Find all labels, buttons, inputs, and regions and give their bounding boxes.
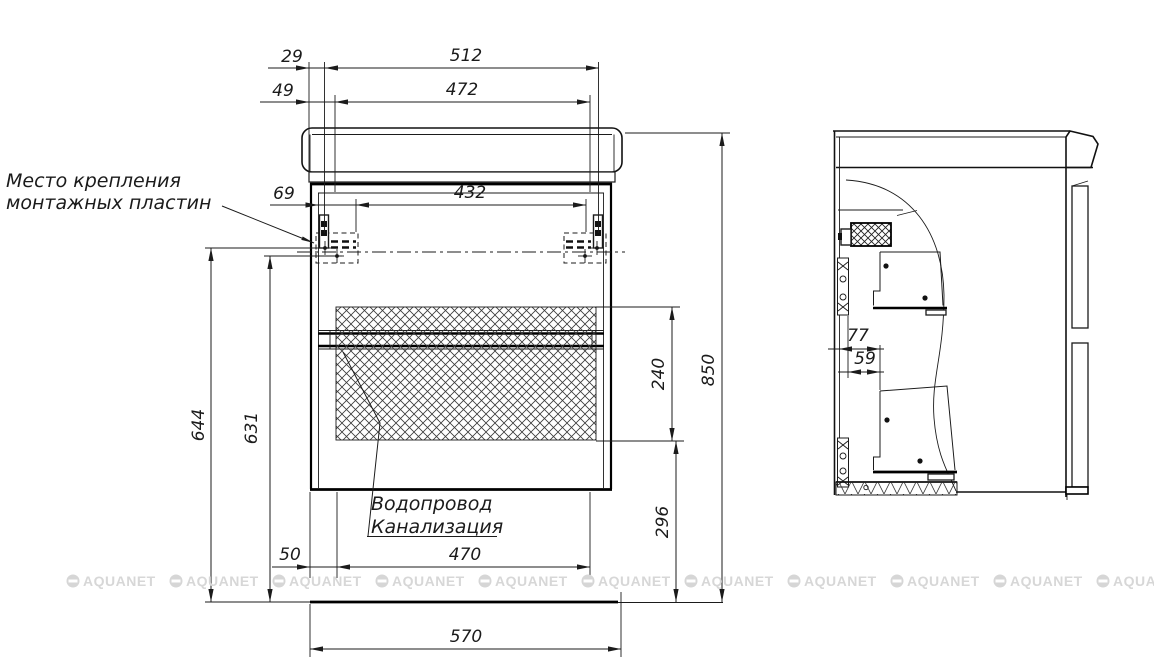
- watermark-label: AQUANET: [1113, 573, 1154, 589]
- dim-240: 240: [649, 358, 669, 390]
- dim-512: 512: [450, 46, 482, 66]
- watermark-label: AQUANET: [598, 573, 671, 589]
- watermark-item: AQUANET: [685, 573, 774, 589]
- watermark-item: AQUANET: [1097, 573, 1154, 589]
- wall-rail-lower: [838, 438, 849, 487]
- dim-432: 432: [454, 183, 486, 203]
- wall-rail-upper: [838, 258, 849, 315]
- watermark-label: AQUANET: [495, 573, 568, 589]
- annotation-mounting-plates: Место крепления монтажных пластин: [6, 170, 314, 243]
- watermark-item: AQUANET: [582, 573, 671, 589]
- drawer-fronts-side: [1066, 168, 1088, 501]
- drawer-box-upper: [873, 252, 947, 315]
- plumbing-note-line2: Канализация: [371, 516, 503, 538]
- watermark-label: AQUANET: [804, 573, 877, 589]
- watermark-label: AQUANET: [186, 573, 259, 589]
- installation-drawing: 29 512 49 472 69 432 50 470 570 644 631 …: [0, 0, 1154, 668]
- washbasin-base: [309, 172, 615, 182]
- dim-69: 69: [273, 184, 295, 204]
- dim-644: 644: [189, 409, 209, 441]
- watermark-label: AQUANET: [907, 573, 980, 589]
- watermark-label: AQUANET: [701, 573, 774, 589]
- mounting-plate-side: [838, 223, 891, 246]
- mounting-note-line2: монтажных пластин: [6, 192, 211, 214]
- watermark-item: AQUANET: [67, 573, 156, 589]
- mounting-note-line1: Место крепления: [6, 170, 181, 192]
- dim-77: 77: [847, 326, 869, 346]
- dim-296: 296: [653, 506, 673, 539]
- mounting-plate-right: [564, 215, 606, 263]
- side-view: [833, 131, 1098, 500]
- dim-29: 29: [281, 47, 303, 67]
- dim-850: 850: [699, 354, 719, 386]
- dim-631: 631: [242, 412, 262, 444]
- dim-49: 49: [272, 81, 294, 101]
- drawing-canvas: 29 512 49 472 69 432 50 470 570 644 631 …: [0, 0, 1154, 668]
- watermark-label: AQUANET: [1010, 573, 1083, 589]
- watermark-item: AQUANET: [273, 573, 362, 589]
- watermark-label: AQUANET: [83, 573, 156, 589]
- dim-472: 472: [446, 80, 478, 100]
- watermark-item: AQUANET: [479, 573, 568, 589]
- washbasin-front: [302, 128, 622, 182]
- plumbing-note-line1: Водопровод: [371, 493, 493, 515]
- washbasin-side: [833, 131, 1098, 491]
- watermark-item: AQUANET: [891, 573, 980, 589]
- watermark-item: AQUANET: [170, 573, 259, 589]
- dim-50: 50: [279, 545, 301, 565]
- watermark-label: AQUANET: [392, 573, 465, 589]
- floor-line: [205, 602, 723, 603]
- watermark-item: AQUANET: [994, 573, 1083, 589]
- watermark-label: AQUANET: [289, 573, 362, 589]
- watermark-item: AQUANET: [788, 573, 877, 589]
- mounting-leader-line: [222, 206, 314, 243]
- dim-59: 59: [854, 349, 876, 369]
- watermark-row: AQUANET AQUANET AQUANET AQUANET AQUANET …: [67, 573, 1154, 589]
- plumbing-zone-hatch: [336, 307, 596, 440]
- dim-470: 470: [449, 545, 481, 565]
- watermark-item: AQUANET: [376, 573, 465, 589]
- dim-570: 570: [450, 627, 482, 647]
- cabinet-bottom-side: [836, 482, 1066, 495]
